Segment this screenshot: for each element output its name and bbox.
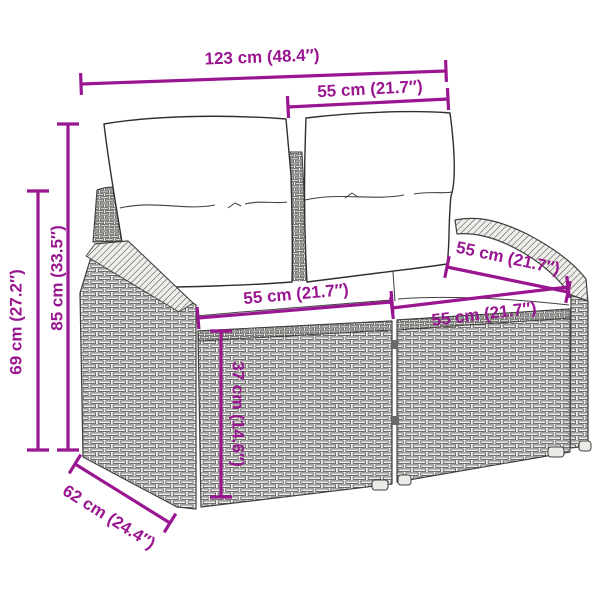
dimension-label: 123 cm (48.4″) <box>204 46 320 69</box>
sofa-dimension-scene: 123 cm (48.4″)55 cm (21.7″)85 cm (33.5″)… <box>0 0 600 600</box>
dimension-label: 55 cm (21.7″) <box>317 77 423 101</box>
dimension-line <box>288 99 448 107</box>
base-module-left <box>198 321 392 507</box>
back-cushion-right <box>305 112 455 282</box>
dimension-cap-end <box>446 60 447 82</box>
dimension-cap-end <box>164 514 176 533</box>
dimension-cap-end <box>447 88 448 110</box>
dimension-label: 37 cm (14.6″) <box>229 361 248 466</box>
dimension-cap-start <box>69 455 81 474</box>
dimension-cap-start <box>287 96 288 118</box>
base-module-right <box>397 309 570 482</box>
dimension-label: 85 cm (33.5″) <box>48 225 67 330</box>
dimension-label: 69 cm (27.2″) <box>7 269 26 374</box>
dimension-height-overall: 85 cm (33.5″) <box>48 124 80 450</box>
dimension-cap-start <box>81 73 82 95</box>
dimension-diagram: 123 cm (48.4″)55 cm (21.7″)85 cm (33.5″)… <box>0 0 600 600</box>
armrest-right-leg <box>570 295 588 448</box>
dimension-cap-start <box>197 307 199 329</box>
dimension-label: 62 cm (24.4″) <box>59 481 159 553</box>
dimension-height-armrest: 69 cm (27.2″) <box>7 191 50 450</box>
